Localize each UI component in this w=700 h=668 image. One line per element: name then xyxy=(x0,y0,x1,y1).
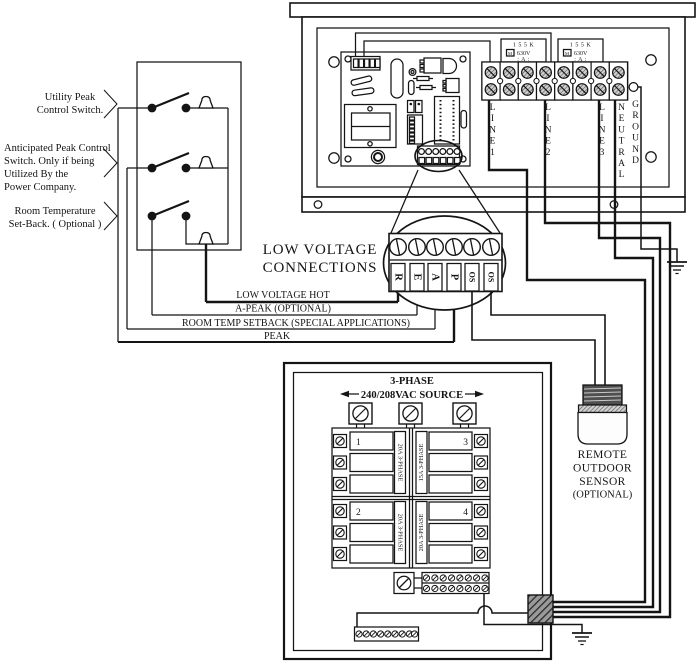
utility-peak-label: Control Switch. xyxy=(37,105,104,116)
ic-chip-icon xyxy=(446,79,459,93)
neutral-label: NEUTRAL xyxy=(618,103,625,180)
terminal-a-label: A xyxy=(430,273,441,281)
lv-screw-icon xyxy=(427,239,444,256)
switch-box-section: Utility Peak Control Switch. Anticipated… xyxy=(4,62,241,250)
breaker3-number: 3 xyxy=(463,438,468,448)
capacitor-icon xyxy=(461,111,467,129)
terminal-r-label: R xyxy=(393,273,404,281)
cable-clamp xyxy=(528,595,553,623)
pole-screw-icon xyxy=(475,548,488,561)
sensor-label: (OPTIONAL) xyxy=(573,490,633,501)
pole-screw-icon xyxy=(334,526,347,539)
neutral-terminal-strip xyxy=(394,573,489,594)
breaker1-number: 1 xyxy=(356,438,361,448)
switch-contact xyxy=(148,104,157,113)
mounting-hole-icon xyxy=(329,153,339,163)
breaker3-rating: 15A 3-PHASE xyxy=(418,444,425,482)
svg-text:M: M xyxy=(508,51,513,56)
pole-screw-icon xyxy=(475,526,488,539)
lv-screw-icon xyxy=(446,239,463,256)
breaker1-rating: 20A 3-PHASE xyxy=(397,444,404,482)
breaker2-number: 2 xyxy=(356,508,361,518)
room-temp-label: Room Temperature xyxy=(14,206,95,217)
pole-screw-icon xyxy=(475,435,488,448)
fuse-rating: 1 5 5 K xyxy=(513,43,535,49)
transistor-icon xyxy=(443,59,457,74)
breaker-panel-section: 3-PHASE 240/208VAC SOURCE 20A 3-PHASE 15… xyxy=(284,363,592,659)
switch-contact xyxy=(182,104,191,113)
remote-outdoor-sensor: REMOTE OUTDOOR SENSOR (OPTIONAL) xyxy=(573,385,633,501)
mounting-hole-icon xyxy=(646,152,656,162)
panel-top-bar xyxy=(290,3,695,17)
panel-title: 240/208VAC SOURCE xyxy=(361,390,463,401)
breaker4-number: 4 xyxy=(463,508,468,518)
pole-screw-icon xyxy=(475,505,488,518)
jumper-icon xyxy=(408,101,415,113)
board-screw-icon xyxy=(345,156,351,162)
panel-title: 3-PHASE xyxy=(390,376,434,387)
fuse-1: 1 5 5 K M 630V : A : xyxy=(501,39,546,63)
fuse-rating: 1 5 5 K xyxy=(570,43,592,49)
pole-screw-icon xyxy=(334,478,347,491)
anticipated-peak-label: Utilized By the xyxy=(4,169,68,180)
board-screw-icon xyxy=(345,56,351,62)
capacitor-icon xyxy=(391,59,403,98)
input-lug-icon xyxy=(349,403,372,429)
svg-text:M: M xyxy=(565,51,570,56)
lv-heading: LOW VOLTAGE xyxy=(263,242,377,258)
pole-screw-icon xyxy=(334,435,347,448)
pole-screw-icon xyxy=(334,505,347,518)
sensor-label: OUTDOOR xyxy=(573,463,632,475)
breaker2-rating: 20A 3-PHASE xyxy=(397,514,404,552)
lv-screw-icon xyxy=(464,239,481,256)
sensor-body xyxy=(578,413,627,445)
board-screw-icon xyxy=(460,56,466,62)
breaker4-rating: 20A 3-PHASE xyxy=(418,514,425,552)
wiring-diagram: Utility Peak Control Switch. Anticipated… xyxy=(0,0,700,668)
terminal-e-label: E xyxy=(412,273,423,280)
resistor-icon xyxy=(417,77,429,81)
terminal-os-label: OS xyxy=(468,272,477,283)
input-lug-icon xyxy=(399,403,422,429)
panel-bottom-flange xyxy=(302,197,685,212)
peak-wire-label: PEAK xyxy=(264,331,291,342)
a-peak-wire-label: A-PEAK (OPTIONAL) xyxy=(235,304,331,315)
earth-ground-icon xyxy=(572,633,592,645)
flange-screw-icon xyxy=(314,201,322,209)
input-lug-icon xyxy=(453,403,476,429)
mounting-hole-icon xyxy=(329,57,339,67)
ground-bar-strip xyxy=(355,627,419,641)
room-temp-wire-label: ROOM TEMP SETBACK (SPECIAL APPLICATIONS) xyxy=(182,318,410,329)
board-lv-strip xyxy=(418,146,461,165)
callout-chevron-icon xyxy=(104,90,117,118)
pole-screw-icon xyxy=(475,456,488,469)
lv-screw-icon xyxy=(409,239,426,256)
ic-socket-icon xyxy=(435,97,460,145)
anticipated-peak-label: Power Company. xyxy=(4,182,76,193)
terminal-p-label: P xyxy=(449,274,460,281)
lv-screw-icon xyxy=(483,239,500,256)
relay-icon xyxy=(424,58,441,73)
pole-screw-icon xyxy=(334,456,347,469)
ground-label: GROUND xyxy=(632,100,639,166)
switch-contact xyxy=(148,164,157,173)
ground-ring-terminal xyxy=(629,83,638,92)
pole-screw-icon xyxy=(334,548,347,561)
switch-contact xyxy=(182,164,191,173)
capacitor-icon xyxy=(409,81,415,95)
anticipated-peak-label: Anticipated Peak Control xyxy=(4,143,111,154)
pole-screw-icon xyxy=(475,478,488,491)
mounting-hole-icon xyxy=(646,55,656,65)
callout-chevron-icon xyxy=(104,202,117,230)
hot-wire-label: LOW VOLTAGE HOT xyxy=(236,290,329,301)
lv-heading: CONNECTIONS xyxy=(263,260,378,276)
sensor-label: SENSOR xyxy=(579,476,626,488)
main-terminal-block xyxy=(482,62,628,100)
sensor-flange xyxy=(579,405,627,413)
breaker-block: 20A 3-PHASE 15A 3-PHASE 20A 3-PHASE 20A … xyxy=(332,428,490,568)
jumper-icon xyxy=(416,101,423,113)
room-temp-label: Set-Back. ( Optional ) xyxy=(9,219,102,230)
fuse-2: 1 5 5 K M 630V : A : xyxy=(558,39,603,63)
resistor-icon xyxy=(420,86,432,90)
lv-screw-icon xyxy=(390,239,407,256)
sensor-label: REMOTE xyxy=(578,449,628,461)
wiring-diagram-canvas: Utility Peak Control Switch. Anticipated… xyxy=(0,0,700,668)
utility-peak-label: Utility Peak xyxy=(45,92,96,103)
terminal-os-label: OS xyxy=(487,272,496,283)
anticipated-peak-label: Switch. Only if being xyxy=(4,156,95,167)
